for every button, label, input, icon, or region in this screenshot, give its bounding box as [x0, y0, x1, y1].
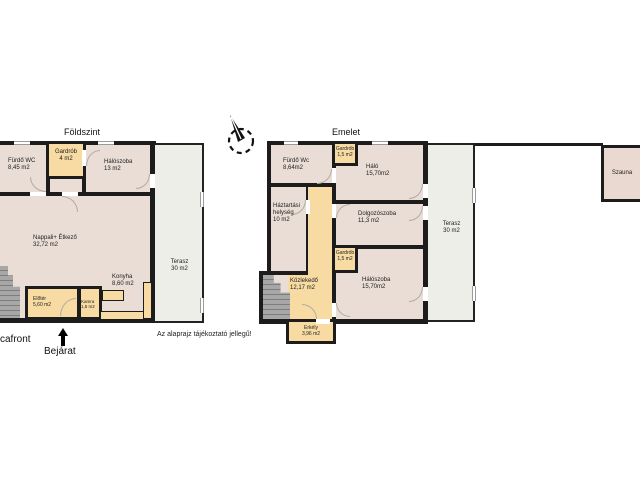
room-label-furdo-wc: Fürdő WC8,45 m2 [8, 158, 35, 172]
window [472, 188, 476, 203]
room-label-gardrob-upper-1: Gardrób1,5 m2 [332, 146, 358, 158]
room-label-dolgozoszoba: Dolgozószoba11,3 m2 [358, 211, 396, 225]
room-label-terasz-ground: Terasz30 m2 [155, 259, 204, 273]
kitchen-counter [143, 282, 152, 319]
door-gap [30, 192, 46, 196]
room-label-terasz-upper: Terasz30 m2 [428, 221, 475, 235]
room-label-kamra: Kamra1,6 m2 [81, 299, 95, 309]
door-gap [423, 206, 428, 220]
room-label-szauna: Szauna [601, 170, 640, 177]
north-compass-icon [221, 113, 259, 159]
window [200, 298, 204, 313]
room-label-konyha: Konyha8,60 m2 [112, 274, 134, 288]
wall [82, 176, 86, 196]
ground-floor-title: Földszint [52, 127, 112, 137]
door-gap [423, 184, 428, 198]
room-label-halo: Háló15,70m2 [366, 164, 389, 178]
disclaimer-text: Az alaprajz tájékoztató jellegű! [157, 331, 252, 338]
window [472, 286, 476, 301]
room-label-kozlekedo: Közlekedő12,17 m2 [290, 278, 318, 292]
window [284, 141, 298, 145]
window [98, 141, 114, 145]
room-label-gardrob-upper-2: Gardrób1,5 m2 [332, 250, 358, 262]
upper-floor-title: Emelet [318, 127, 374, 137]
wall [475, 143, 603, 146]
street-front-label: cafront [0, 334, 31, 345]
wall [259, 271, 263, 324]
kitchen-counter [102, 290, 124, 301]
door-gap [423, 287, 428, 301]
window [200, 192, 204, 207]
door-gap [150, 174, 155, 188]
kitchen-counter [100, 311, 144, 320]
room-label-nappali: Nappali+ Étkező32,72 m2 [33, 235, 77, 249]
room-label-erkely: Erkély3,96 m2 [286, 325, 336, 337]
room-label-furdo-wc-upper: Fürdő Wc8,64m2 [283, 158, 309, 172]
room-label-haloszoba: Hálószoba13 m2 [104, 159, 132, 173]
ground-terrace [155, 143, 204, 323]
room-label-haloszoba-upper: Hálószoba15,70m2 [362, 277, 390, 291]
door-gap [332, 168, 336, 183]
room-label-gardrob: Gardrób4 m2 [46, 149, 86, 163]
window [372, 141, 388, 145]
entrance-label: Bejárat [44, 346, 76, 357]
room-label-haztartasi: Háztartási helység10 m2 [273, 203, 311, 224]
window [14, 141, 30, 145]
room-label-eloter: Előtér5,60 m2 [33, 296, 51, 308]
entrance-arrow-icon [57, 328, 69, 346]
floorplan-page: Földszint Fürdő WC8,45 m2 Gardrób4 m2 Há… [0, 0, 640, 480]
wall [267, 141, 271, 275]
door-gap [316, 319, 330, 324]
wall [259, 319, 428, 324]
